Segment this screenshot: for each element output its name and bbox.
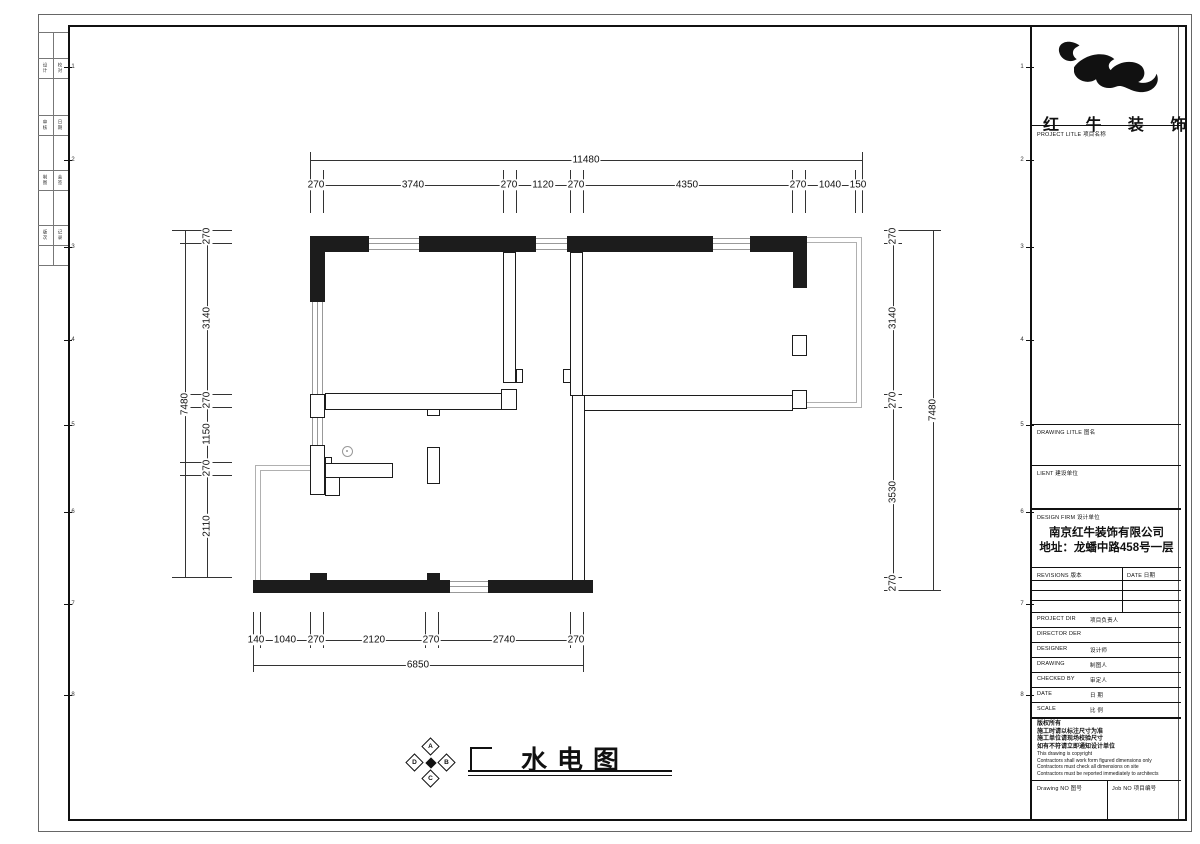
- compass-letter: B: [440, 759, 453, 766]
- revisions-date-label: DATE 日期: [1127, 571, 1155, 579]
- grid-ref-tick: [64, 604, 72, 605]
- revisions-label: REVISIONS 版本: [1037, 571, 1082, 579]
- copyright-line: 如有不符请立即通知设计单位: [1037, 744, 1177, 752]
- row-label-zh: 比 例: [1090, 706, 1103, 714]
- grid-ref-tick: [1026, 425, 1034, 426]
- row-label-en: PROJECT DIR: [1037, 616, 1076, 622]
- dimension-label: 140: [247, 634, 266, 645]
- wall-segment: [570, 252, 583, 396]
- dimension-label: 1150: [202, 422, 213, 446]
- right-inner-line: [1178, 27, 1179, 819]
- copyright-line: 版权所有: [1037, 721, 1177, 729]
- dimension-label: 270: [888, 227, 899, 246]
- wall-segment: [325, 477, 340, 496]
- window: [713, 238, 750, 250]
- job-no-label: Job NO 项目编号: [1112, 784, 1156, 792]
- dimension-label: 1040: [818, 179, 842, 190]
- signoff-cell-label: 版次: [42, 230, 48, 241]
- grid-ref-number: 7: [1020, 601, 1023, 607]
- cad-sheet: 设计校对审核日期制图会签版次记录: [0, 0, 1200, 844]
- row-label-en: DESIGNER: [1037, 646, 1067, 652]
- grid-ref-tick: [64, 425, 72, 426]
- dimension-label: 270: [422, 634, 441, 645]
- dimension-label: 2110: [202, 514, 213, 538]
- balcony-line: [260, 470, 311, 580]
- wall-segment: [419, 236, 536, 252]
- window: [312, 418, 323, 445]
- grid-ref-number: 2: [1020, 157, 1023, 163]
- compass-letter: D: [408, 759, 421, 766]
- dimension-label: 3530: [888, 480, 899, 504]
- wall-segment: [488, 580, 593, 593]
- grid-ref-number: 6: [1020, 509, 1023, 515]
- window: [312, 302, 323, 394]
- wall-segment: [501, 389, 517, 410]
- copyright-line: Contractors must be reported immediately…: [1037, 771, 1177, 777]
- grid-ref-tick: [64, 512, 72, 513]
- grid-ref-tick: [1026, 604, 1034, 605]
- orientation-icon: A D B C: [408, 740, 454, 786]
- dimension-tick: [503, 170, 504, 213]
- dimension-label: 3740: [401, 179, 425, 190]
- wall-segment: [792, 390, 807, 409]
- title-block: 红 牛 装 饰 PROJECT LITLE 项目名称 DRAWING LITLE…: [1030, 25, 1187, 821]
- grid-ref-number: 5: [1020, 422, 1023, 428]
- strip-line: [38, 265, 68, 266]
- grid-ref-tick: [1026, 67, 1034, 68]
- grid-ref-tick: [1026, 512, 1034, 513]
- signoff-cell-label: 会签: [57, 175, 63, 186]
- company-address: 地址：龙蟠中路458号一层: [1032, 539, 1181, 555]
- grid-ref-tick: [64, 67, 72, 68]
- column: [427, 447, 440, 484]
- wall-segment: [325, 393, 503, 410]
- row-label-zh: 项目负责人: [1090, 616, 1119, 624]
- grid-ref-tick: [1026, 160, 1034, 161]
- title-underline: [468, 775, 672, 776]
- dimension-tick: [583, 170, 584, 213]
- grid-ref-number: 3: [1020, 244, 1023, 250]
- dimension-tick: [855, 170, 856, 213]
- dimension-tick: [172, 577, 232, 578]
- dimension-label: 3140: [888, 306, 899, 330]
- grid-ref-number: 4: [1020, 337, 1023, 343]
- row-label-en: DATE: [1037, 691, 1052, 697]
- drawing-area-border: [68, 25, 1034, 821]
- grid-ref-tick: [64, 247, 72, 248]
- grid-ref-number: 1: [1020, 64, 1023, 70]
- dimension-label: 270: [888, 391, 899, 410]
- dimension-label: 270: [567, 634, 586, 645]
- wall-segment: [563, 369, 571, 383]
- copyright-line: 施工单位请现场校验尺寸: [1037, 736, 1177, 744]
- row-label-en: SCALE: [1037, 706, 1056, 712]
- window: [536, 238, 567, 250]
- wall-segment: [427, 573, 440, 581]
- dimension-label: 1120: [531, 179, 555, 190]
- signoff-cell-label: 校对: [57, 63, 63, 74]
- wall-segment: [253, 580, 450, 593]
- drawing-title-label: DRAWING LITLE 图名: [1037, 428, 1095, 436]
- dimension-label: 6850: [406, 659, 430, 670]
- dimension-tick: [805, 170, 806, 213]
- drawing-no-label: Drawing NO 图号: [1037, 784, 1082, 792]
- dimension-label: 7480: [928, 398, 939, 422]
- dimension-line: [253, 640, 583, 641]
- wall-segment: [516, 369, 523, 383]
- grid-ref-tick: [1026, 340, 1034, 341]
- grid-ref-tick: [1026, 695, 1034, 696]
- dimension-label: 2120: [362, 634, 386, 645]
- title-bracket: [470, 747, 492, 749]
- wall-segment: [310, 252, 325, 302]
- wall-segment: [567, 236, 713, 252]
- dimension-label: 270: [202, 227, 213, 246]
- signoff-cell-label: 设计: [42, 63, 48, 74]
- grid-ref-tick: [64, 340, 72, 341]
- dimension-line: [310, 185, 862, 186]
- dimension-tick: [323, 170, 324, 213]
- company-name: 南京红牛装饰有限公司: [1032, 524, 1181, 540]
- window: [450, 581, 488, 593]
- grid-ref-tick: [64, 695, 72, 696]
- dimension-label: 7480: [180, 392, 191, 416]
- wall-segment: [750, 236, 807, 252]
- client-label: LIENT 建设单位: [1037, 469, 1078, 477]
- title-bracket: [470, 747, 472, 772]
- dimension-label: 4350: [675, 179, 699, 190]
- dimension-tick: [570, 170, 571, 213]
- dimension-label: 270: [202, 459, 213, 478]
- compass-letter: C: [424, 775, 437, 782]
- dimension-tick: [792, 170, 793, 213]
- dimension-label: 270: [202, 391, 213, 410]
- wall-segment: [503, 252, 516, 383]
- dimension-label: 270: [888, 574, 899, 593]
- dimension-label: 270: [500, 179, 519, 190]
- company-logo-icon: [1052, 35, 1162, 107]
- wall-segment: [310, 236, 369, 252]
- wall-segment: [310, 445, 325, 495]
- row-label-zh: 日 期: [1090, 691, 1103, 699]
- column: [792, 335, 807, 356]
- dimension-label: 270: [567, 179, 586, 190]
- wall-segment: [310, 573, 327, 581]
- grid-ref-tick: [1026, 247, 1034, 248]
- signoff-cell-label: 记录: [57, 230, 63, 241]
- compass-letter: A: [424, 743, 437, 750]
- row-label-zh: 审定人: [1090, 676, 1107, 684]
- dimension-tick: [516, 170, 517, 213]
- dimension-label: 1040: [273, 634, 297, 645]
- row-label-en: DIRECTOR DER: [1037, 631, 1081, 637]
- dimension-label: 270: [307, 179, 326, 190]
- wall-segment: [793, 252, 807, 288]
- row-label-en: CHECKED BY: [1037, 676, 1075, 682]
- dimension-label: 3140: [202, 306, 213, 330]
- signoff-cell-label: 制图: [42, 175, 48, 186]
- dimension-label: 11480: [571, 154, 600, 165]
- signoff-cell-label: 审核: [42, 120, 48, 131]
- fixture-symbol: [342, 446, 353, 457]
- grid-ref-tick: [64, 160, 72, 161]
- design-firm-label: DESIGN FIRM 设计单位: [1037, 513, 1100, 521]
- wall-segment: [427, 409, 440, 416]
- wall-segment: [572, 395, 585, 581]
- wall-segment: [310, 394, 325, 418]
- copyright-block: 版权所有 施工时请以标注尺寸为准 施工单位请现场校验尺寸 如有不符请立即通知设计…: [1037, 721, 1177, 777]
- wall-segment: [572, 395, 793, 411]
- dimension-line: [893, 230, 894, 590]
- dimension-label: 270: [307, 634, 326, 645]
- row-label-zh: 设计师: [1090, 646, 1107, 654]
- row-label-en: DRAWING: [1037, 661, 1065, 667]
- wall-segment: [325, 463, 393, 478]
- signoff-cell-label: 日期: [57, 120, 63, 131]
- dimension-label: 150: [849, 179, 868, 190]
- row-label-zh: 制图人: [1090, 661, 1107, 669]
- dimension-label: 2740: [492, 634, 516, 645]
- dimension-label: 270: [789, 179, 808, 190]
- project-title-label: PROJECT LITLE 项目名称: [1037, 130, 1106, 138]
- window: [369, 238, 419, 250]
- balcony-line: [807, 242, 857, 403]
- grid-ref-number: 8: [1020, 692, 1023, 698]
- strip-line: [53, 32, 54, 265]
- title-underline: [468, 770, 672, 772]
